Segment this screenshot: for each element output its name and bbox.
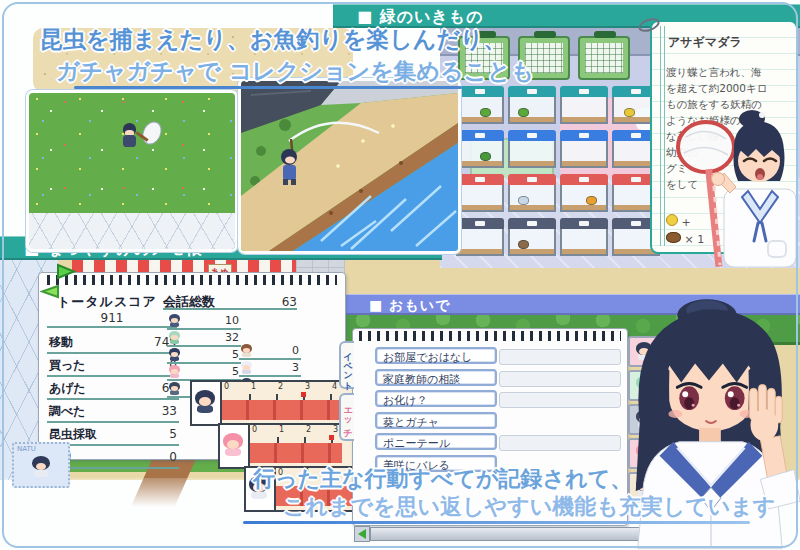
- chibi-sprite: [169, 365, 180, 378]
- boy-with-net-illustration: [672, 95, 800, 267]
- bug-tank[interactable]: [456, 218, 504, 256]
- case-handle: [594, 31, 616, 38]
- chibi-sprite: [169, 348, 180, 361]
- tank-soil: [510, 117, 554, 122]
- tank-latch: [631, 133, 641, 138]
- stat-label: 移動: [49, 334, 73, 351]
- bug-sprite: [480, 108, 491, 117]
- tank-latch: [527, 221, 537, 226]
- bug-sprite: [586, 196, 597, 205]
- talk-row: 3: [239, 360, 301, 377]
- tank-soil: [562, 205, 606, 210]
- stat-value: 33: [162, 404, 177, 418]
- stat-label: 昆虫採取: [49, 426, 97, 443]
- chibi-sprite: [241, 344, 252, 357]
- chibi-body: [197, 405, 212, 413]
- stat-label: あげた: [49, 380, 86, 397]
- top-caption-line2: ガチャガチャで コレクションを集めることも: [56, 56, 534, 87]
- memory-slot: [499, 392, 621, 408]
- stat-row: 調べた33: [47, 400, 179, 423]
- stat-row: 買った0: [47, 354, 179, 377]
- chibi-body: [34, 470, 48, 477]
- bug-tank[interactable]: [560, 86, 608, 124]
- top-caption-line1: 昆虫を捕まえたり、お魚釣りを楽しんだり、: [40, 24, 506, 55]
- bug-sprite: [518, 108, 529, 117]
- chibi-face: [171, 369, 178, 374]
- chibi-body: [225, 448, 240, 456]
- promo-collage: あめ ■ なつやすみのメモ帳 ■ 緑のいきもの ■ おもいで: [0, 0, 800, 550]
- paperclip-icon: [636, 16, 662, 34]
- tank-soil: [562, 117, 606, 122]
- chibi-face: [171, 318, 178, 323]
- player-sprite-bug-catching: [117, 121, 161, 155]
- bug-tank[interactable]: [508, 86, 556, 124]
- tank-latch: [527, 89, 537, 94]
- tank-latch: [475, 89, 485, 94]
- chibi-face: [171, 352, 178, 357]
- memory-item[interactable]: お化け？: [375, 390, 497, 407]
- chibi-body: [170, 390, 178, 394]
- tank-latch: [579, 221, 589, 226]
- memory-item[interactable]: 葵とガチャ: [375, 412, 497, 429]
- gauge-marker: [301, 392, 306, 397]
- chibi-body: [170, 322, 178, 326]
- fishing-scene: [241, 81, 458, 251]
- bug-sprite: [624, 108, 635, 117]
- tank-soil: [458, 161, 502, 166]
- stat-value: 5: [169, 427, 177, 441]
- encyclopedia-description-line: 渡り蝶と言われ、海: [666, 64, 792, 80]
- tank-latch: [579, 89, 589, 94]
- tank-latch: [475, 221, 485, 226]
- gauge-portrait-box: [190, 380, 224, 426]
- screenshot-fishing: [238, 78, 461, 254]
- chibi-sprite: [169, 382, 180, 395]
- gauge-tick-number: 4: [332, 382, 337, 391]
- bug-sprite: [518, 240, 529, 249]
- case-window: [585, 43, 623, 73]
- memories-tab-etchi[interactable]: エッチ: [339, 393, 354, 441]
- bug-sprite: [480, 152, 491, 161]
- memory-item[interactable]: 家庭教師の相談: [375, 369, 497, 386]
- chibi-sprite: [169, 314, 180, 327]
- memory-item[interactable]: お部屋でおはなし: [375, 347, 497, 364]
- stat-label: 調べた: [49, 403, 86, 420]
- chibi-sprite: [195, 390, 215, 413]
- tank-soil: [562, 161, 606, 166]
- bottom-caption-underline: [243, 521, 750, 524]
- stat-label: 買った: [49, 357, 86, 374]
- gauge-tick-number: 2: [278, 382, 283, 391]
- scrollbar-left-arrow[interactable]: [354, 526, 370, 542]
- player-name-box: NATU: [12, 442, 70, 488]
- bug-tank[interactable]: [456, 86, 504, 124]
- chibi-body: [242, 369, 250, 373]
- scrollbar-track[interactable]: [370, 527, 646, 541]
- gauge-tick-number: 2: [306, 425, 311, 434]
- gauge-tick-number: 3: [333, 425, 338, 434]
- bug-sprite: [518, 196, 529, 205]
- spiral-binding: [47, 275, 337, 285]
- tank-soil: [458, 249, 502, 254]
- encyclopedia-title: アサギマダラ: [668, 34, 742, 51]
- memory-slot: [499, 371, 621, 387]
- talk-row: 10: [167, 313, 241, 330]
- chibi-body: [242, 352, 250, 356]
- chibi-face: [243, 348, 250, 353]
- carrying-case[interactable]: [578, 36, 630, 80]
- screenshot-bug-catching: [26, 90, 238, 252]
- chibi-body: [170, 356, 178, 360]
- bug-tank[interactable]: [508, 130, 556, 168]
- talk-row: 5: [167, 364, 241, 381]
- bug-tank[interactable]: [560, 130, 608, 168]
- bug-tank[interactable]: [508, 218, 556, 256]
- talk-value: 32: [225, 331, 239, 344]
- bottom-caption-line1: 行った主な行動すべてが記録されて、: [253, 464, 632, 494]
- chibi-face: [171, 335, 178, 340]
- page-next-arrow[interactable]: [56, 263, 76, 280]
- chibi-sprite: [223, 433, 243, 456]
- talk-value: 3: [292, 361, 299, 374]
- stat-row: 移動749: [47, 331, 179, 354]
- chibi-sprite: [32, 456, 50, 477]
- memory-item[interactable]: ポニーテール: [375, 433, 497, 450]
- talk-value: 5: [232, 348, 239, 361]
- talk-value: 10: [225, 314, 239, 327]
- tank-latch: [631, 89, 641, 94]
- memory-slot: [499, 435, 621, 451]
- top-caption-underline: [74, 86, 462, 89]
- tank-soil: [510, 249, 554, 254]
- chibi-body: [170, 373, 178, 377]
- memories-tab-event[interactable]: イベント: [339, 341, 354, 389]
- page-prev-arrow[interactable]: [40, 284, 60, 299]
- tank-soil: [458, 205, 502, 210]
- talk-value: 5: [232, 365, 239, 378]
- tank-latch: [631, 221, 641, 226]
- bug-tank[interactable]: [560, 174, 608, 212]
- tank-soil: [458, 117, 502, 122]
- gauge-portrait-box: [218, 423, 252, 469]
- talk-underline: [163, 297, 297, 310]
- memories-scrollbar[interactable]: [354, 526, 646, 542]
- bottom-caption-line2: これまでを思い返しやすい機能も充実しています: [283, 492, 775, 522]
- talk-row: 0: [239, 343, 301, 360]
- tank-soil: [510, 161, 554, 166]
- memory-slot: [499, 349, 621, 365]
- spiral-binding: [359, 331, 621, 341]
- tank-latch: [631, 177, 641, 182]
- talk-value: 0: [292, 344, 299, 357]
- tank-latch: [475, 177, 485, 182]
- gauge-marker: [329, 435, 334, 440]
- tank-latch: [579, 133, 589, 138]
- stat-value: 0: [169, 450, 177, 464]
- tank-soil: [510, 205, 554, 210]
- player-chibi-sprite: [32, 456, 50, 481]
- margin-rule: [660, 26, 665, 246]
- chibi-sprite: [241, 361, 252, 374]
- encyclopedia-description-line: を超えて約2000キロ: [666, 80, 792, 96]
- bug-tank[interactable]: [560, 218, 608, 256]
- gauge-fill: [250, 443, 342, 463]
- total-score-label: トータルスコア: [57, 293, 157, 311]
- bug-tank[interactable]: [456, 130, 504, 168]
- gauge-tick-number: 1: [279, 425, 284, 434]
- tank-latch: [475, 133, 485, 138]
- talk-row: 32: [167, 330, 241, 347]
- gauge-tick-number: 3: [305, 382, 310, 391]
- gauge-tick-number: 0: [224, 382, 229, 391]
- chibi-sprite: [169, 331, 180, 344]
- tank-soil: [562, 249, 606, 254]
- total-underline: [47, 313, 177, 328]
- stat-row: あげた61: [47, 377, 179, 400]
- gauge-tick-number: 1: [251, 382, 256, 391]
- bug-tank[interactable]: [508, 174, 556, 212]
- gauge-tick-number: 0: [252, 425, 257, 434]
- bug-tank[interactable]: [456, 174, 504, 212]
- player-name-label: NATU: [14, 444, 68, 453]
- case-handle: [534, 31, 556, 38]
- tank-latch: [527, 177, 537, 182]
- chibi-face: [243, 365, 250, 370]
- talk-row: 5: [167, 347, 241, 364]
- tank-latch: [527, 133, 537, 138]
- tile-floor: [29, 213, 235, 249]
- tank-latch: [579, 177, 589, 182]
- chibi-face: [171, 386, 178, 391]
- chibi-body: [170, 339, 178, 343]
